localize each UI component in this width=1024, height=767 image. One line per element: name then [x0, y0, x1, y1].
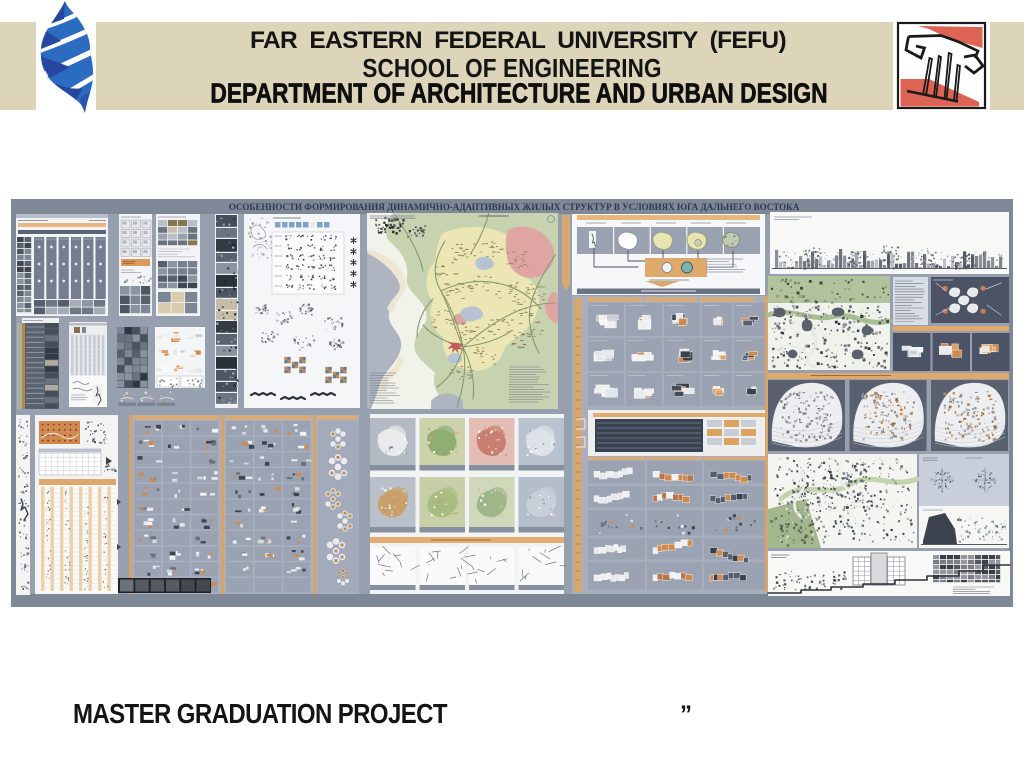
svg-text:ОСОБЕННОСТИ ФОРМИРОВАНИЯ ДИНАМ: ОСОБЕННОСТИ ФОРМИРОВАНИЯ ДИНАМИЧНО-АДАПТ…: [229, 202, 800, 212]
